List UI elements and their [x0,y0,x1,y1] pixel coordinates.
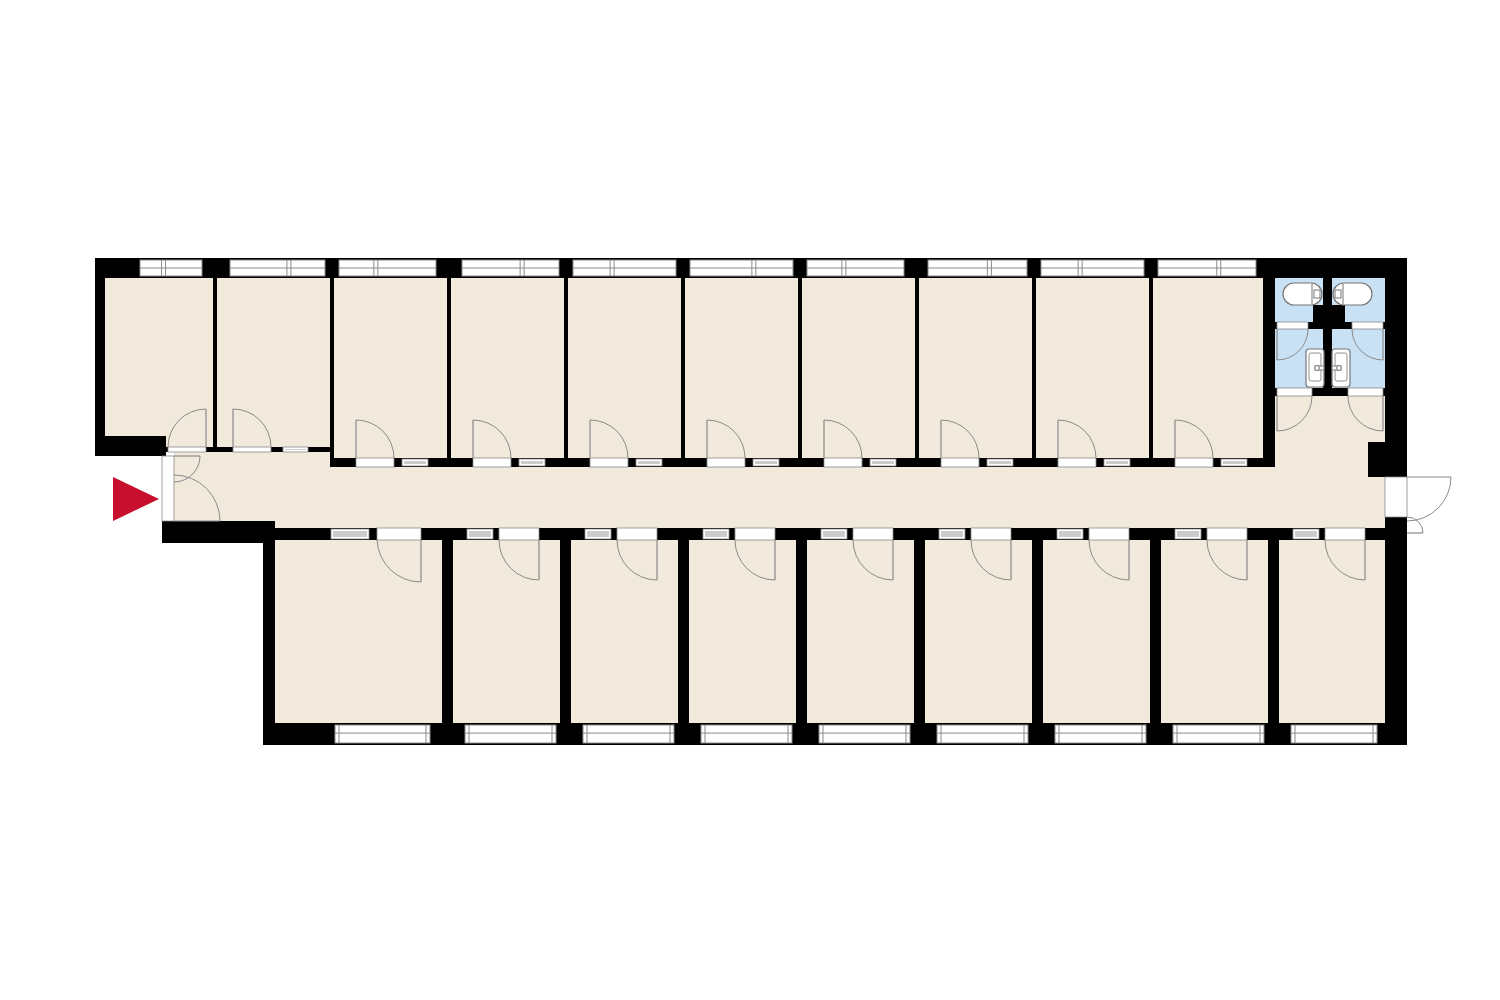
opening-top-room-2 [233,447,271,452]
bathtub-right-icon-tap [1335,290,1341,298]
wall-top-div-1 [213,278,217,452]
sidelight-top-room-8-pane [989,461,1011,464]
sidelight-bottom-room-1-pane [333,531,367,537]
wall-bottom-div-8 [1268,528,1279,723]
floor-plan-svg [0,0,1500,1000]
sidelight-bottom-room-9-pane [1295,531,1317,537]
window-bottom-9 [1291,725,1377,743]
sink-left-icon-tap-dot [1315,366,1320,371]
sidelight-bottom-room-4-pane [705,531,727,537]
wall-top-div-7 [915,278,919,467]
opening-bath-left [1277,388,1312,396]
wall-top-div-8 [1032,278,1036,467]
sidelight-top-room-9-pane [1106,461,1128,464]
floor-plan-canvas [0,0,1500,1000]
opening-top-room-9 [1058,458,1096,467]
bottom-room-9 [1279,528,1385,723]
sidelight-top-room-4-pane [521,461,543,464]
entrance-arrow-icon [113,477,159,521]
bathtub-left-icon-tap [1314,290,1320,298]
sidelight-bottom-room-3-pane [587,531,609,537]
top-room-7 [802,278,915,467]
door-exit-large-swing-arc [1407,477,1451,521]
opening-top-room-1 [168,447,206,452]
top-room-1 [105,278,213,452]
opening-top-room-4 [473,458,511,467]
opening-bottom-room-2 [499,528,539,540]
sidelight-bottom-room-5-pane [823,531,845,537]
top-room-4 [451,278,564,467]
opening-bottom-room-5 [853,528,893,540]
opening-bottom-room-8 [1207,528,1247,540]
wall-toprooms-bottom [330,458,1275,467]
top-room-6 [685,278,798,467]
window-bottom-6 [937,725,1028,743]
sidelight-bottom-room-6-pane [941,531,963,537]
opening-bottom-room-4 [735,528,775,540]
window-bottom-8 [1173,725,1264,743]
window-bottom-1 [335,725,430,743]
sidelight-bottom-room-7-pane [1059,531,1081,537]
top-room-9 [1036,278,1149,467]
wall-vestibule-left [1263,278,1275,467]
wall-top-div-4 [564,278,568,467]
window-bottom-3 [583,725,674,743]
wall-top-div-3 [447,278,451,467]
wall-bottom-div-2 [560,528,571,723]
opening-top-room-7 [824,458,862,467]
bottom-room-7 [1043,528,1150,723]
wall-corridor-pillar [1368,442,1385,477]
wall-bottomroom1-left [263,528,275,745]
sidelight-bottom-room-2-pane [469,531,491,537]
sidelight-top-room-6-pane [755,461,777,464]
top-room-8 [919,278,1032,467]
opening-bottom-room-3 [617,528,657,540]
wall-bottom-div-3 [678,528,689,723]
bottom-room-1 [275,528,442,723]
opening-top-room-8 [941,458,979,467]
wall-top-div-9 [1149,278,1153,467]
window-bottom-7 [1055,725,1146,743]
wall-right-upper [1385,258,1407,477]
wall-left [95,278,105,456]
window-bottom-5 [819,725,910,743]
bottom-room-4 [689,528,796,723]
bottom-room-3 [571,528,678,723]
bottom-room-2 [453,528,560,723]
sidelight-top-room-10-pane [1223,461,1245,464]
sidelight-top-room-3-pane [404,461,426,464]
wall-bottom-div-1 [442,528,453,723]
top-room-2 [217,278,330,452]
opening-top-room-6 [707,458,745,467]
sidelight-top-room-5-pane [638,461,660,464]
top-room-3 [334,278,447,467]
wall-bottom-div-7 [1150,528,1161,723]
sidelight-top-room-7-pane [872,461,894,464]
opening-top-room-3 [356,458,394,467]
wall-bottom-div-5 [914,528,925,723]
opening-bath-tub-left [1277,322,1308,329]
wall-bottom-div-4 [796,528,807,723]
opening-top-room-5 [590,458,628,467]
bottom-room-8 [1161,528,1268,723]
wall-bottom-div-6 [1032,528,1043,723]
wall-top-div-6 [798,278,802,467]
wall-right-lower [1385,517,1407,745]
wall-top-div-5 [681,278,685,467]
wall-corridor-bottom-left [162,521,275,543]
opening-exit [1385,477,1407,517]
opening-bottom-room-6 [971,528,1011,540]
wall-top-div-2 [330,278,334,467]
opening-bottom-room-9 [1325,528,1365,540]
sidelight-top-room-2-pane [285,449,306,450]
opening-top-room-10 [1175,458,1213,467]
opening-entrance [162,456,174,521]
sink-right-icon-tap-dot [1337,366,1342,371]
wall-left-step [95,436,166,456]
bottom-room-6 [925,528,1032,723]
bottom-room-5 [807,528,914,723]
opening-bath-tub-right [1352,322,1383,329]
opening-bath-right [1348,388,1383,396]
opening-bottom-room-1 [377,528,421,540]
sidelight-bottom-room-8-pane [1177,531,1199,537]
window-bottom-2 [465,725,556,743]
opening-bottom-room-7 [1089,528,1129,540]
window-bottom-4 [701,725,792,743]
top-room-5 [568,278,681,467]
